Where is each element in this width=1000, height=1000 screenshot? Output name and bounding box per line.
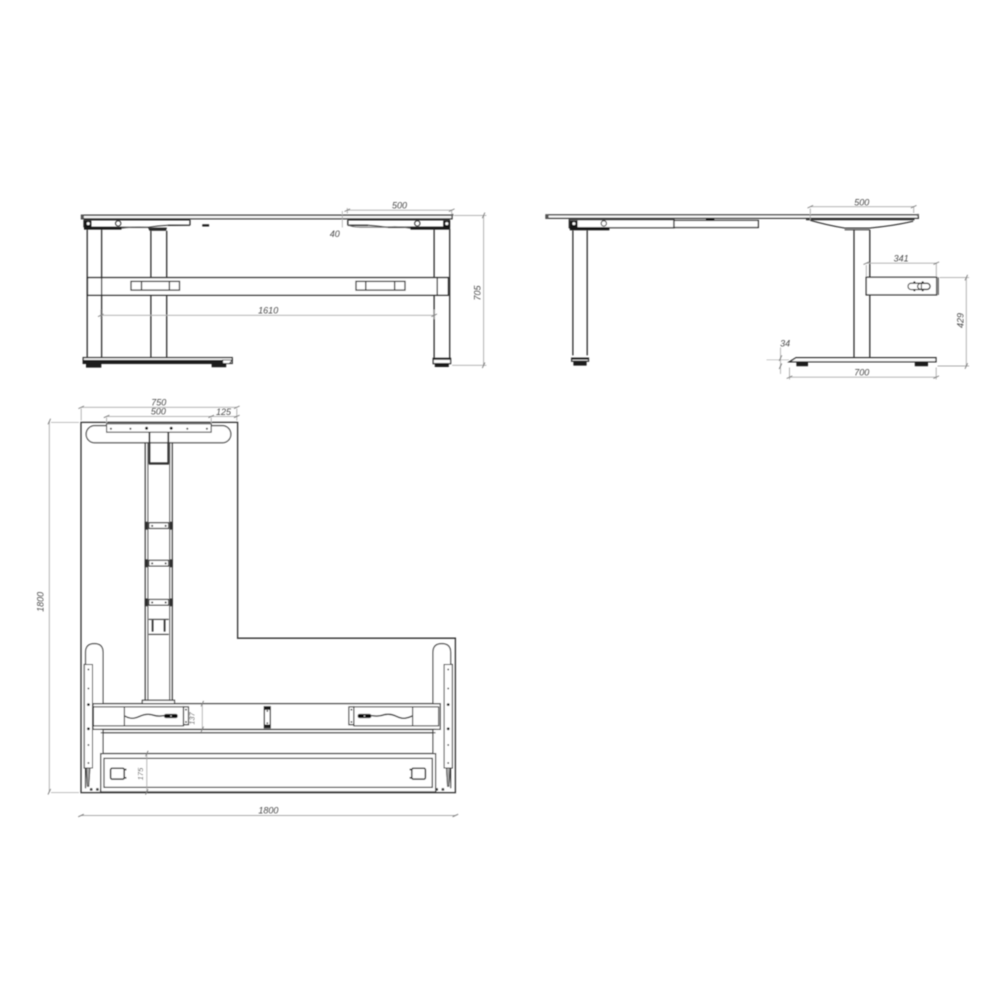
svg-text:429: 429 bbox=[955, 313, 965, 328]
svg-text:34: 34 bbox=[780, 338, 790, 348]
svg-text:40: 40 bbox=[330, 229, 340, 239]
svg-text:705: 705 bbox=[473, 285, 483, 301]
svg-text:500: 500 bbox=[854, 197, 869, 207]
svg-text:125: 125 bbox=[216, 407, 232, 417]
svg-text:700: 700 bbox=[854, 368, 869, 378]
svg-text:500: 500 bbox=[392, 200, 407, 210]
svg-text:500: 500 bbox=[151, 407, 166, 417]
svg-text:1610: 1610 bbox=[258, 305, 278, 315]
svg-text:1800: 1800 bbox=[258, 805, 278, 815]
svg-text:1800: 1800 bbox=[35, 592, 45, 612]
svg-text:175: 175 bbox=[136, 767, 145, 780]
svg-text:137: 137 bbox=[188, 711, 197, 724]
svg-text:341: 341 bbox=[894, 253, 909, 263]
